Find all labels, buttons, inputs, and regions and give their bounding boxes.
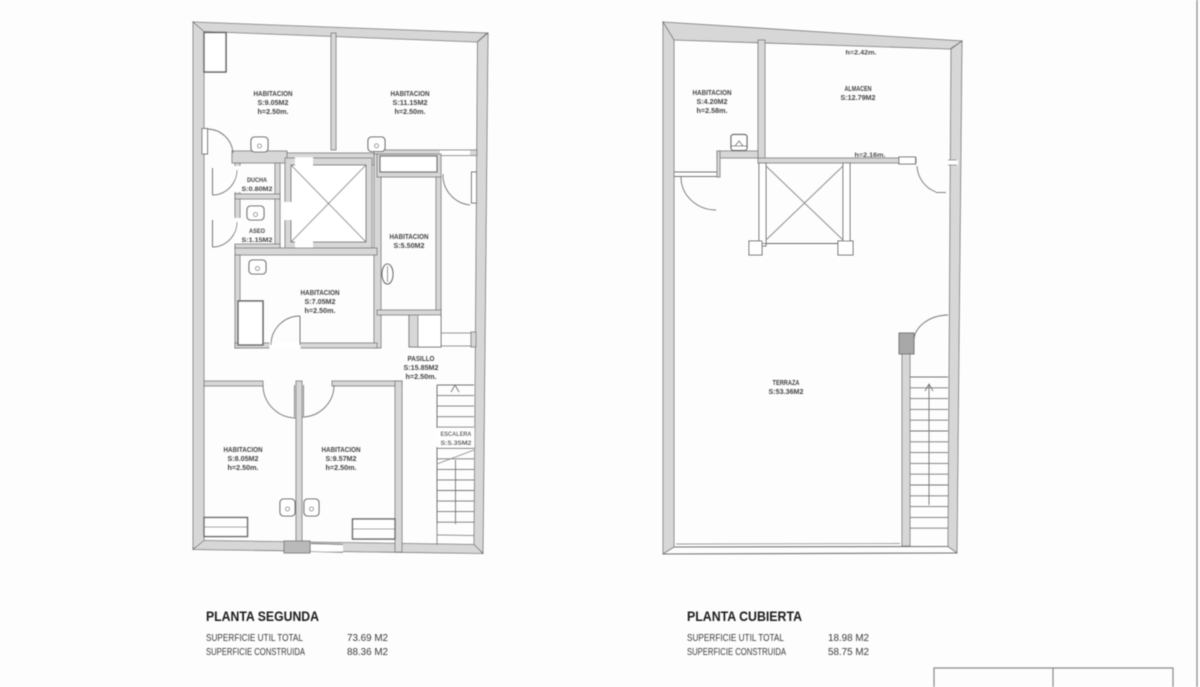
svg-text:S:5.35M2: S:5.35M2	[441, 440, 473, 447]
svg-text:S:12.79M2: S:12.79M2	[841, 95, 876, 102]
svg-text:DUCHA: DUCHA	[247, 177, 267, 184]
svg-text:SUPERFICIE CONSTRUIDA: SUPERFICIE CONSTRUIDA	[687, 647, 786, 658]
svg-text:h=2.50m.: h=2.50m.	[395, 109, 426, 116]
svg-text:h=2.58m.: h=2.58m.	[697, 108, 728, 115]
svg-text:S:4.20M2: S:4.20M2	[697, 99, 728, 106]
svg-text:18.98 M2: 18.98 M2	[828, 633, 869, 644]
svg-text:HABITACION: HABITACION	[254, 91, 293, 98]
svg-text:h=2.16m.: h=2.16m.	[855, 152, 886, 159]
svg-text:HABITACION: HABITACION	[301, 290, 340, 297]
svg-text:S:0.80M2: S:0.80M2	[242, 186, 273, 193]
svg-text:h=2.50m.: h=2.50m.	[228, 465, 259, 472]
svg-text:h=2.50m.: h=2.50m.	[258, 109, 289, 116]
svg-text:58.75 M2: 58.75 M2	[828, 647, 869, 658]
svg-text:HABITACION: HABITACION	[224, 447, 263, 454]
svg-text:S:1.15M2: S:1.15M2	[242, 237, 273, 244]
svg-text:S:53.36M2: S:53.36M2	[769, 389, 804, 396]
svg-text:ASEO: ASEO	[249, 228, 265, 235]
svg-text:HABITACION: HABITACION	[322, 447, 361, 454]
svg-text:HABITACION: HABITACION	[391, 91, 430, 98]
svg-text:S:9.57M2: S:9.57M2	[326, 456, 357, 463]
svg-text:S:15.85M2: S:15.85M2	[404, 365, 439, 372]
svg-text:S:9.05M2: S:9.05M2	[258, 100, 289, 107]
svg-text:ESCALERA: ESCALERA	[441, 431, 472, 438]
svg-text:PASILLO: PASILLO	[408, 356, 435, 363]
svg-text:PLANTA CUBIERTA: PLANTA CUBIERTA	[687, 609, 802, 624]
svg-text:HABITACION: HABITACION	[693, 90, 732, 97]
svg-text:73.69 M2: 73.69 M2	[347, 633, 388, 644]
svg-text:S:7.05M2: S:7.05M2	[305, 299, 336, 306]
svg-text:S:8.05M2: S:8.05M2	[228, 456, 259, 463]
svg-text:PLANTA SEGUNDA: PLANTA SEGUNDA	[206, 609, 319, 624]
svg-text:S:5.50M2: S:5.50M2	[394, 243, 425, 250]
svg-text:ALMACEN: ALMACEN	[845, 86, 872, 93]
svg-text:88.36 M2: 88.36 M2	[347, 647, 388, 658]
svg-text:h=2.50m.: h=2.50m.	[305, 308, 336, 315]
svg-text:SUPERFICIE UTIL TOTAL: SUPERFICIE UTIL TOTAL	[687, 633, 784, 644]
svg-text:TERRAZA: TERRAZA	[773, 380, 800, 387]
svg-text:SUPERFICIE CONSTRUIDA: SUPERFICIE CONSTRUIDA	[206, 647, 305, 658]
svg-text:h=2.50m.: h=2.50m.	[406, 374, 437, 381]
svg-text:S:11.15M2: S:11.15M2	[393, 100, 428, 107]
svg-text:h=2.50m.: h=2.50m.	[326, 465, 357, 472]
svg-text:HABITACION: HABITACION	[390, 234, 429, 241]
svg-text:h=2.42m.: h=2.42m.	[846, 50, 877, 57]
svg-text:SUPERFICIE UTIL TOTAL: SUPERFICIE UTIL TOTAL	[206, 633, 303, 644]
